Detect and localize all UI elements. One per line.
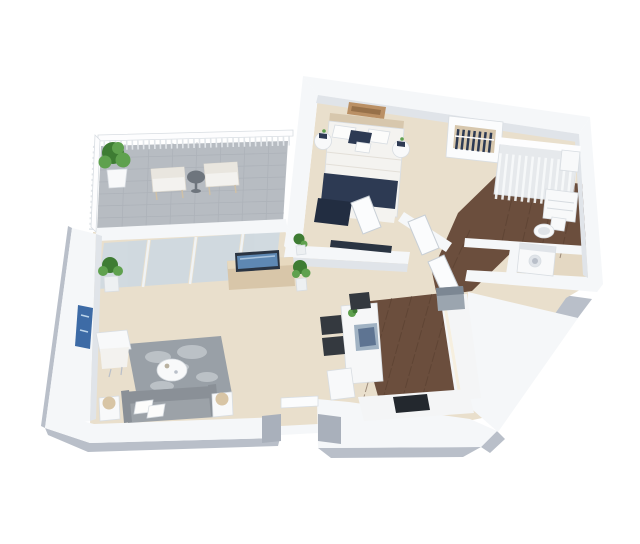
floorplan-render: [0, 0, 640, 544]
wardrobe-shelf: [446, 116, 503, 163]
plant-foliage: [116, 153, 131, 168]
plant-pot: [104, 276, 119, 292]
armchair-seat: [100, 347, 129, 369]
glass-pane: [145, 237, 194, 286]
cooktop: [393, 394, 430, 413]
plant-pot: [296, 278, 307, 291]
bed-navy-drape: [314, 198, 352, 226]
plant-pot: [107, 169, 127, 188]
plant-foliage: [113, 266, 123, 276]
railing-north-top: [98, 130, 293, 141]
plant-foliage: [99, 156, 112, 169]
living-wall-art: [75, 305, 93, 349]
sink-basin: [358, 327, 376, 347]
chair-back: [204, 162, 238, 174]
chair-back: [151, 167, 185, 179]
shower-shelf-column: [560, 150, 580, 172]
entry-jamb-right: [318, 414, 341, 444]
coffee-table-top: [157, 359, 187, 381]
bar-stool: [349, 292, 371, 310]
toilet-seat: [538, 227, 550, 235]
bar-stool: [322, 336, 345, 356]
floor-lamp: [212, 392, 233, 417]
plant-foliage: [292, 270, 300, 278]
coffee-table: [157, 359, 187, 381]
rug-blotch: [196, 372, 218, 382]
table-decor: [165, 364, 170, 369]
plant-foliage: [302, 269, 311, 278]
table-base: [191, 189, 201, 193]
shadow-kitchen-south: [318, 447, 481, 458]
plant-foliage: [112, 142, 124, 154]
table-decor: [174, 370, 178, 374]
chair-leg: [235, 185, 236, 193]
chair-leg: [209, 187, 210, 195]
nightstand-item: [319, 133, 327, 139]
entry-jamb-left: [262, 414, 281, 443]
bed-roll-pillow: [355, 142, 371, 153]
table-top: [187, 171, 205, 184]
lamp-shade: [103, 397, 116, 410]
chair-leg: [156, 192, 157, 200]
floor-lamp: [99, 396, 120, 421]
sofa-pillow: [147, 404, 165, 418]
plant-foliage: [98, 266, 108, 276]
lamp-shade: [216, 393, 229, 406]
chair-leg: [182, 190, 183, 198]
vanity-cabinet: [543, 189, 578, 222]
rug-blotch: [177, 345, 207, 359]
kitchen-white-block: [327, 368, 355, 400]
nightstand-sprig: [400, 137, 404, 141]
bar-stool: [320, 315, 343, 335]
kitchen-appliance: [436, 286, 465, 311]
washing-machine-drum: [532, 258, 538, 264]
vanity-body: [543, 189, 578, 222]
laundry-fixtures: [517, 243, 556, 276]
entry-threshold: [281, 396, 318, 408]
nightstand-sprig: [322, 129, 326, 133]
plant-pot: [296, 245, 306, 255]
nightstand-item: [397, 141, 405, 147]
floorplan-canvas: [0, 0, 640, 544]
wall-art-canvas: [75, 305, 93, 349]
